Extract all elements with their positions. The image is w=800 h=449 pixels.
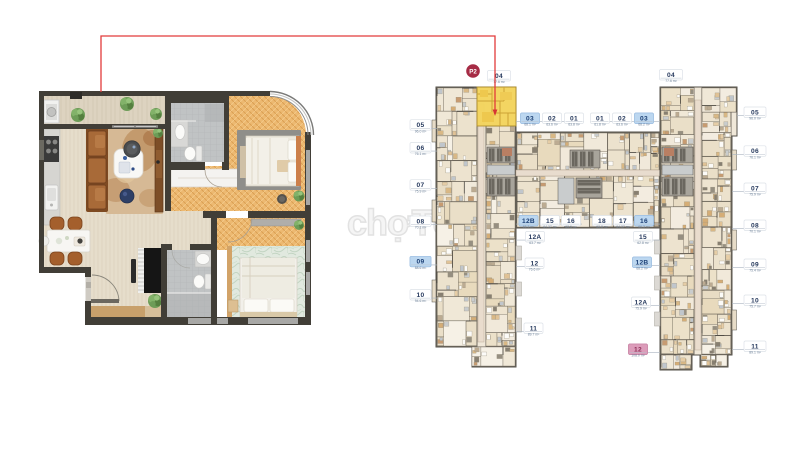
- svg-text:88.6 m²: 88.6 m²: [415, 266, 427, 270]
- svg-text:P2: P2: [469, 68, 477, 75]
- svg-text:96.0 m²: 96.0 m²: [415, 129, 427, 133]
- svg-text:07: 07: [751, 185, 759, 192]
- svg-text:62.8 m²: 62.8 m²: [637, 241, 649, 245]
- svg-text:75.9 m²: 75.9 m²: [749, 193, 761, 197]
- svg-text:89.7 m²: 89.7 m²: [528, 333, 540, 337]
- svg-text:63.6 m²: 63.6 m²: [546, 123, 558, 127]
- svg-text:18: 18: [598, 218, 606, 225]
- svg-text:63.8 m²: 63.8 m²: [568, 123, 580, 127]
- svg-text:63.8 m²: 63.8 m²: [596, 225, 608, 229]
- svg-text:108.0 m²: 108.0 m²: [631, 354, 645, 358]
- svg-text:16: 16: [640, 218, 648, 225]
- svg-text:70.1 m²: 70.1 m²: [749, 230, 761, 234]
- svg-text:08: 08: [417, 218, 425, 225]
- svg-text:75.9 m²: 75.9 m²: [415, 189, 427, 193]
- svg-text:75.7 m²: 75.7 m²: [749, 305, 761, 309]
- svg-text:65.3 m²: 65.3 m²: [523, 225, 535, 229]
- svg-text:75.4 m²: 75.4 m²: [749, 269, 761, 273]
- svg-text:77.6 m²: 77.6 m²: [665, 79, 677, 83]
- svg-text:76.6 m²: 76.6 m²: [529, 268, 541, 272]
- svg-text:68.1 m²: 68.1 m²: [524, 123, 536, 127]
- svg-text:66.3 m²: 66.3 m²: [638, 225, 650, 229]
- svg-text:68.2 m²: 68.2 m²: [636, 267, 648, 271]
- svg-text:15: 15: [639, 234, 647, 241]
- svg-text:17: 17: [619, 218, 627, 225]
- svg-text:89.1 m²: 89.1 m²: [749, 351, 761, 355]
- svg-text:12B: 12B: [522, 218, 535, 225]
- svg-text:15: 15: [546, 218, 554, 225]
- svg-text:61.8 m²: 61.8 m²: [594, 123, 606, 127]
- svg-text:06: 06: [417, 145, 425, 152]
- svg-text:12A: 12A: [529, 234, 542, 241]
- svg-text:63.7 m²: 63.7 m²: [529, 241, 541, 245]
- svg-text:16: 16: [567, 218, 575, 225]
- svg-text:76.1 m²: 76.1 m²: [415, 152, 427, 156]
- svg-text:64.37 m²: 64.37 m²: [543, 225, 557, 229]
- svg-text:64.37 m²: 64.37 m²: [616, 225, 630, 229]
- svg-text:76.1 m²: 76.1 m²: [749, 155, 761, 159]
- svg-text:96.0 m²: 96.0 m²: [749, 117, 761, 121]
- svg-text:08: 08: [751, 222, 759, 229]
- svg-text:94.6 m²: 94.6 m²: [415, 299, 427, 303]
- svg-text:70.1 m²: 70.1 m²: [415, 226, 427, 230]
- svg-text:75.9 m²: 75.9 m²: [635, 307, 647, 311]
- svg-text:63.6 m²: 63.6 m²: [565, 225, 577, 229]
- svg-text:63.6 m²: 63.6 m²: [616, 123, 628, 127]
- svg-text:68.2 m²: 68.2 m²: [638, 123, 650, 127]
